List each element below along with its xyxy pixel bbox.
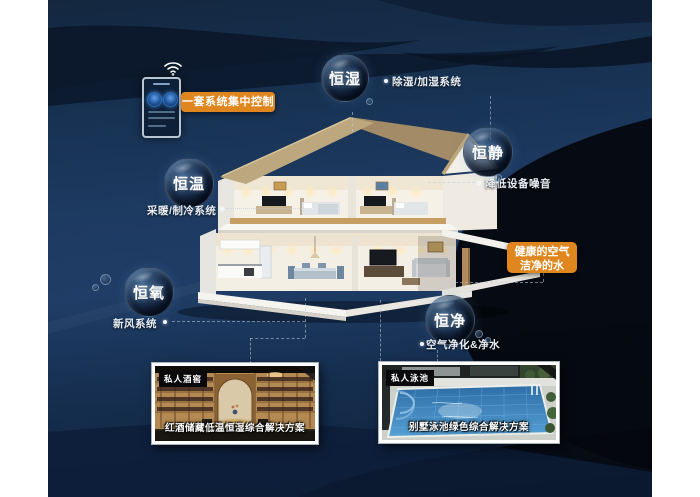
dot-humidity <box>384 79 388 83</box>
connector-house-wine-h <box>250 338 305 339</box>
pool-caption: 别墅泳池绿色综合解决方案 <box>382 419 556 433</box>
pool-tag: 私人泳池 <box>386 370 434 386</box>
connector-house-wine-v1 <box>305 298 306 338</box>
connector-house-quiet <box>428 182 475 183</box>
dot-oxygen <box>163 320 167 324</box>
wifi-icon <box>164 61 182 76</box>
dot-quiet <box>477 181 481 185</box>
bubble-dot <box>485 337 491 343</box>
label-oxygen: 新风系统 <box>113 316 157 331</box>
panel-dial-right <box>163 92 178 107</box>
clean-water-line: 洁净的水 <box>507 259 577 273</box>
dot-temperature <box>220 207 224 211</box>
connector-house-wine-v2 <box>250 338 251 364</box>
bubble-dot <box>92 284 99 291</box>
dot-purity <box>420 342 424 346</box>
central-control-label: 一套系统集中控制 <box>181 92 275 112</box>
connector-water-box-h <box>445 282 543 283</box>
healthy-air-line: 健康的空气 <box>507 245 577 259</box>
wine-cellar-card: 私人酒窖 红酒储藏低温恒湿综合解决方案 <box>152 363 318 444</box>
bubble-oxygen-text: 恒氧 <box>133 282 165 303</box>
wine-cellar-tag: 私人酒窖 <box>159 371 207 387</box>
label-humidity: 除湿/加湿系统 <box>392 74 461 89</box>
bubble-quiet-text: 恒静 <box>472 142 504 163</box>
label-temperature: 采暖/制冷系统 <box>147 203 216 218</box>
connector-control-roof <box>352 112 353 132</box>
pool-photo: 私人泳池 别墅泳池绿色综合解决方案 <box>382 365 556 440</box>
bubble-dot <box>100 274 111 285</box>
bubble-humidity-text: 恒湿 <box>329 68 361 89</box>
healthy-air-water-box: 健康的空气 洁净的水 <box>507 242 577 273</box>
pool-card: 私人泳池 别墅泳池绿色综合解决方案 <box>379 362 559 443</box>
connector-temperature-house <box>226 208 304 209</box>
panel-dial-left <box>147 92 162 107</box>
smart-control-panel <box>142 77 181 138</box>
bubble-quiet: 恒静 <box>463 127 513 177</box>
bubble-purity-text: 恒净 <box>434 310 466 331</box>
connector-house-pool <box>380 300 381 361</box>
panel-row <box>148 111 175 113</box>
bubble-humidity: 恒湿 <box>321 54 369 102</box>
panel-row <box>148 125 166 127</box>
connector-oxygen-house <box>172 321 305 322</box>
bubble-oxygen: 恒氧 <box>124 267 174 317</box>
connector-water-box-v <box>543 273 544 282</box>
diagram-canvas: 一套系统集中控制 恒湿 除湿/加湿系统 恒静 降低设备噪音 恒温 采暖/制冷系统… <box>48 0 652 497</box>
bubble-temperature: 恒温 <box>164 158 214 208</box>
bubble-temperature-text: 恒温 <box>173 173 205 194</box>
panel-header-bar <box>153 83 170 85</box>
wine-cellar-caption: 红酒储藏低温恒湿综合解决方案 <box>155 420 315 434</box>
bubble-dot <box>494 174 502 182</box>
panel-row <box>148 117 175 119</box>
wine-cellar-photo: 私人酒窖 红酒储藏低温恒湿综合解决方案 <box>155 366 315 441</box>
bubble-dot <box>475 330 483 338</box>
bubble-dot <box>366 98 373 105</box>
